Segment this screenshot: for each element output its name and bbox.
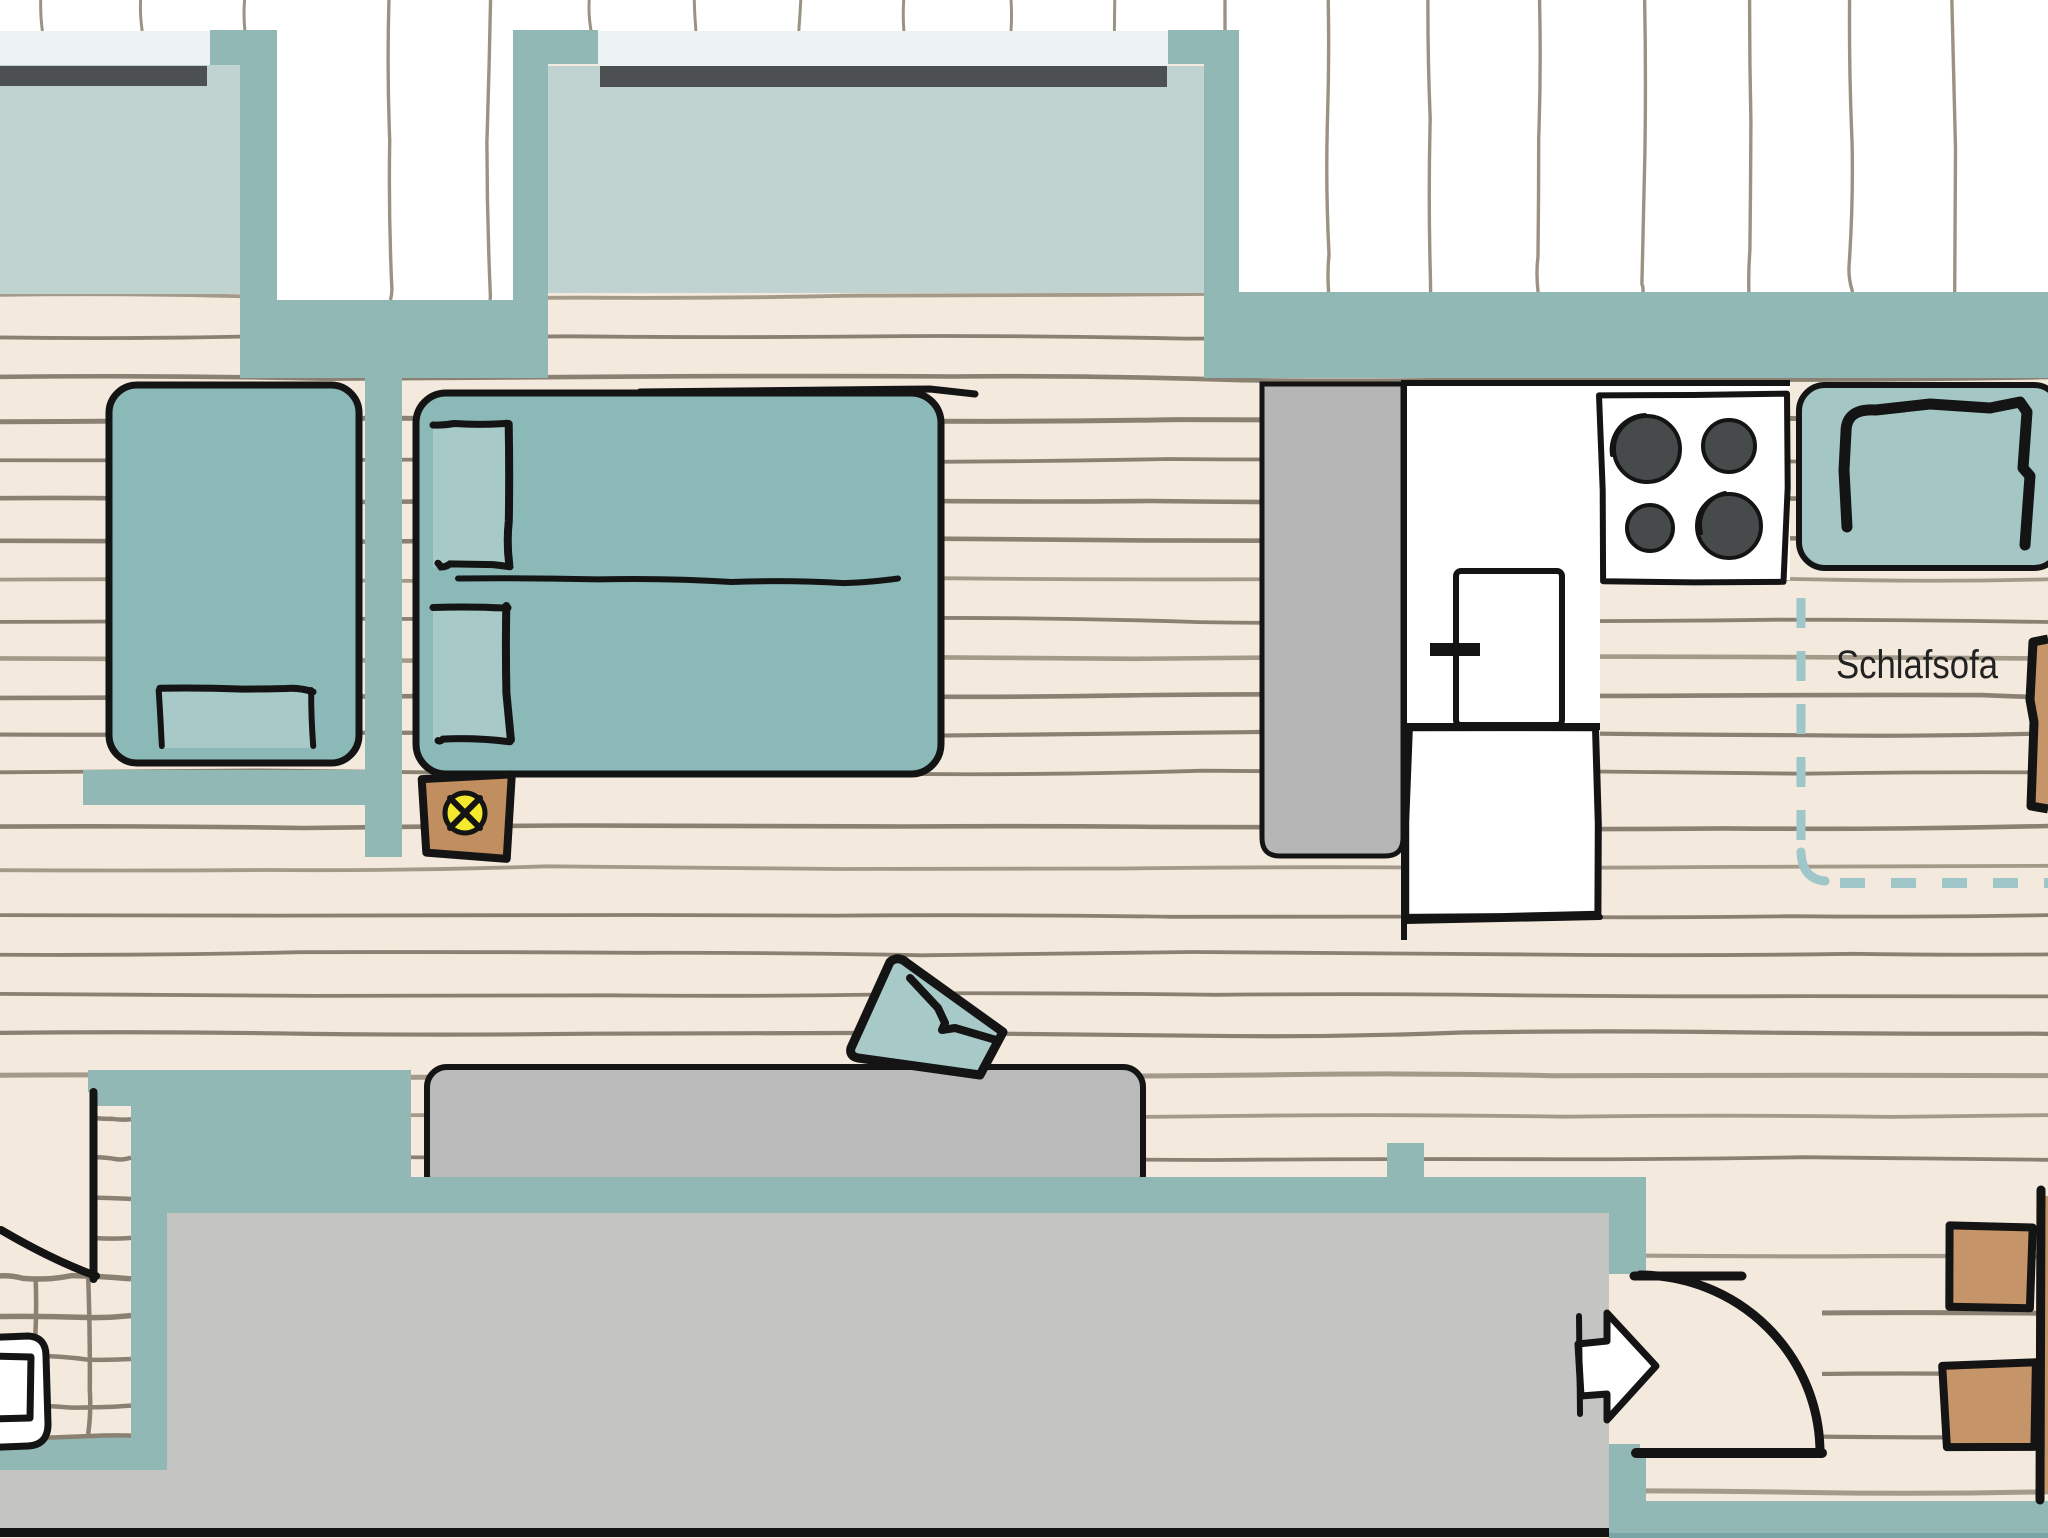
svg-text:Schlafsofa: Schlafsofa — [1836, 643, 1999, 687]
